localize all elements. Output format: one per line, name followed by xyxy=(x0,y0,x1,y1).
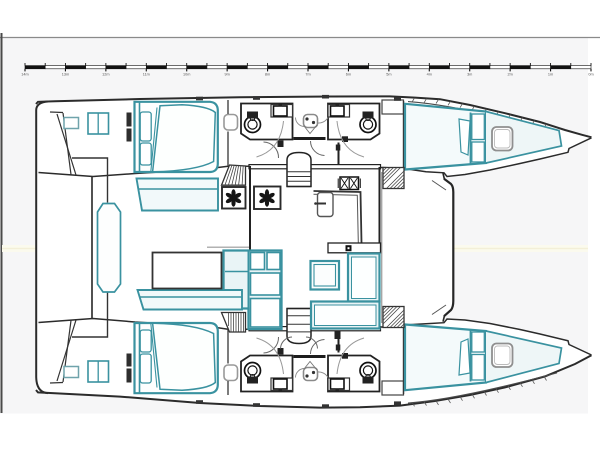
svg-text:13m: 13m xyxy=(62,73,69,77)
svg-text:1m: 1m xyxy=(548,73,553,77)
svg-text:5m: 5m xyxy=(386,73,391,77)
svg-text:7m: 7m xyxy=(305,73,310,77)
svg-text:14m: 14m xyxy=(21,73,28,77)
svg-text:3m: 3m xyxy=(467,73,472,77)
svg-text:0m: 0m xyxy=(588,73,593,77)
svg-text:10m: 10m xyxy=(183,73,190,77)
svg-text:6m: 6m xyxy=(346,73,351,77)
svg-text:11m: 11m xyxy=(143,73,150,77)
svg-text:8m: 8m xyxy=(265,73,270,77)
svg-text:4m: 4m xyxy=(427,73,432,77)
svg-text:2m: 2m xyxy=(507,73,512,77)
svg-text:12m: 12m xyxy=(102,73,109,77)
svg-text:9m: 9m xyxy=(224,73,229,77)
